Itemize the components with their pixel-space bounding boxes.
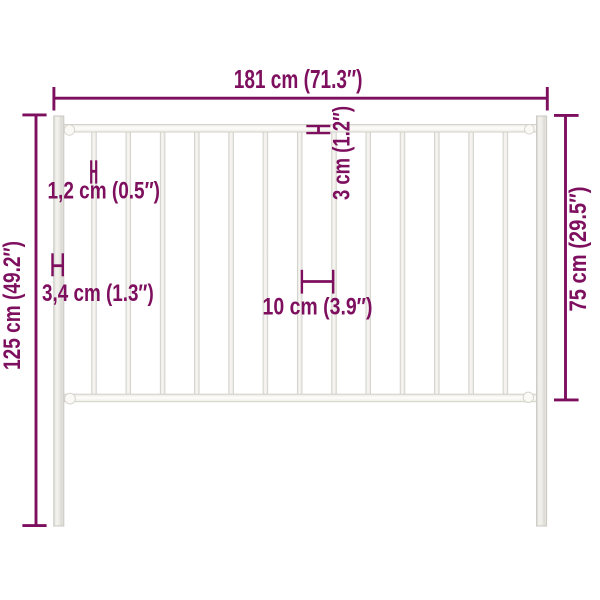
svg-text:3,4 cm (1.3″): 3,4 cm (1.3″) (42, 280, 154, 307)
svg-text:1,2 cm (0.5″): 1,2 cm (0.5″) (48, 178, 161, 205)
svg-text:10 cm (3.9″): 10 cm (3.9″) (263, 294, 373, 321)
svg-text:75 cm (29.5″): 75 cm (29.5″) (565, 187, 592, 312)
svg-text:181 cm (71.3′′): 181 cm (71.3′′) (234, 64, 363, 94)
svg-text:125 cm (49.2″): 125 cm (49.2″) (0, 241, 26, 370)
svg-text:3 cm (1.2″): 3 cm (1.2″) (329, 106, 356, 200)
